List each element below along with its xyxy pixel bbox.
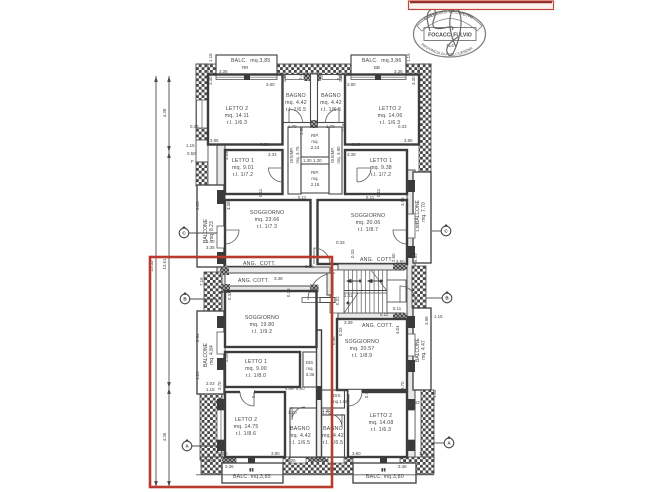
- svg-text:3.33: 3.33: [268, 152, 277, 157]
- svg-text:3.85: 3.85: [404, 138, 413, 143]
- svg-text:FOCACCI FULVIO: FOCACCI FULVIO: [428, 33, 472, 39]
- svg-text:1.30: 1.30: [303, 158, 312, 163]
- svg-text:4.36: 4.36: [162, 432, 167, 441]
- svg-text:0.22: 0.22: [335, 296, 340, 305]
- svg-text:mq. 4.42: mq. 4.42: [320, 100, 342, 106]
- svg-text:2.60: 2.60: [282, 73, 287, 82]
- svg-text:1.68: 1.68: [341, 123, 346, 132]
- svg-text:RR: RR: [242, 65, 248, 70]
- svg-text:3.80: 3.80: [266, 82, 275, 87]
- svg-text:3.50: 3.50: [305, 264, 314, 269]
- svg-text:2.05: 2.05: [195, 201, 200, 210]
- svg-text:0.33: 0.33: [214, 400, 223, 405]
- svg-text:4.06: 4.06: [285, 386, 294, 391]
- svg-text:BAGNO: BAGNO: [321, 93, 341, 99]
- svg-text:mq. 4.42: mq. 4.42: [285, 100, 307, 106]
- svg-text:r.l. 1/7.2: r.l. 1/7.2: [371, 172, 391, 178]
- svg-text:SOGGIORNO: SOGGIORNO: [345, 339, 379, 345]
- svg-text:2.28: 2.28: [224, 353, 229, 362]
- svg-text:LETTO 2: LETTO 2: [226, 106, 248, 112]
- svg-text:DIS.: DIS.: [333, 393, 342, 398]
- svg-text:1.15: 1.15: [186, 143, 195, 148]
- svg-text:3.80: 3.80: [347, 82, 356, 87]
- svg-text:2.05: 2.05: [345, 458, 354, 463]
- svg-text:r.l. 1/8.6: r.l. 1/8.6: [236, 431, 256, 437]
- svg-text:SOGGIORNO: SOGGIORNO: [245, 315, 279, 321]
- svg-text:0.11: 0.11: [376, 188, 381, 197]
- svg-text:3.38: 3.38: [274, 276, 283, 281]
- svg-text:ANG. COTT.: ANG. COTT.: [360, 257, 393, 263]
- svg-text:LETTO 2: LETTO 2: [370, 413, 392, 419]
- svg-text:BB: BB: [374, 65, 380, 70]
- svg-text:2.40: 2.40: [298, 71, 303, 80]
- svg-text:0.11: 0.11: [364, 389, 369, 398]
- svg-text:LETTO 1: LETTO 1: [232, 158, 254, 164]
- svg-text:3.85: 3.85: [210, 138, 219, 143]
- svg-text:0.33: 0.33: [338, 327, 343, 336]
- svg-text:SOGGIORNO: SOGGIORNO: [250, 210, 284, 216]
- svg-text:3.26: 3.26: [205, 458, 214, 463]
- svg-text:3.70: 3.70: [217, 381, 222, 390]
- svg-text:mq. 20.06: mq. 20.06: [356, 220, 381, 226]
- svg-text:r.l. 1/8.9: r.l. 1/8.9: [352, 353, 372, 359]
- svg-text:3.70: 3.70: [400, 381, 405, 390]
- svg-text:mq. 3.76: mq. 3.76: [295, 146, 300, 164]
- svg-text:3.55: 3.55: [400, 197, 405, 206]
- svg-text:0.11: 0.11: [258, 188, 263, 197]
- svg-text:mq. 23.66: mq. 23.66: [255, 217, 280, 223]
- svg-text:2.05: 2.05: [287, 458, 296, 463]
- svg-text:BAGNO: BAGNO: [286, 93, 306, 99]
- svg-text:mq. 9.01: mq. 9.01: [232, 165, 254, 171]
- svg-text:mq. 19.80: mq. 19.80: [250, 322, 275, 328]
- svg-text:ANG. COTT.: ANG. COTT.: [238, 278, 269, 284]
- svg-text:1.68: 1.68: [299, 126, 304, 135]
- svg-text:3.35: 3.35: [206, 245, 215, 250]
- svg-text:4.04: 4.04: [395, 325, 400, 334]
- svg-text:1.15: 1.15: [419, 451, 428, 456]
- svg-text:SOGGIORNO: SOGGIORNO: [351, 213, 385, 219]
- svg-text:BALC. mq.3,86: BALC. mq.3,86: [362, 58, 401, 64]
- svg-text:4.38: 4.38: [162, 108, 167, 117]
- svg-text:mq. 8.23: mq. 8.23: [209, 221, 215, 241]
- svg-text:mq. 4.84: mq. 4.84: [209, 345, 215, 365]
- svg-text:3.95: 3.95: [260, 142, 269, 147]
- svg-text:1.41: 1.41: [344, 293, 353, 298]
- svg-text:mq. 7.70: mq. 7.70: [421, 202, 427, 222]
- svg-text:5.11: 5.11: [298, 195, 307, 200]
- svg-text:RIP.: RIP.: [311, 170, 319, 175]
- svg-text:LETTO 1: LETTO 1: [245, 359, 267, 365]
- svg-text:3.38: 3.38: [347, 152, 356, 157]
- svg-text:LETTO 2: LETTO 2: [235, 417, 257, 423]
- svg-text:mq. 9.00: mq. 9.00: [245, 366, 267, 372]
- svg-text:2.24: 2.24: [311, 145, 320, 150]
- svg-text:5.11: 5.11: [380, 312, 389, 317]
- svg-text:13.61: 13.61: [162, 258, 167, 270]
- svg-text:1.11: 1.11: [432, 389, 437, 398]
- svg-text:3.30: 3.30: [208, 76, 213, 85]
- svg-text:3.36: 3.36: [398, 464, 407, 469]
- svg-text:r.l. 1/8.0: r.l. 1/8.0: [246, 373, 266, 379]
- svg-text:0.50: 0.50: [187, 151, 196, 156]
- svg-text:DISIMP.: DISIMP.: [289, 147, 294, 163]
- svg-text:1.23: 1.23: [195, 371, 200, 380]
- svg-text:5.11: 5.11: [393, 306, 402, 311]
- svg-text:0.33: 0.33: [350, 249, 355, 258]
- svg-text:1.30: 1.30: [322, 408, 331, 413]
- svg-text:3.36: 3.36: [225, 464, 234, 469]
- svg-text:mq.: mq.: [311, 176, 318, 181]
- svg-text:mq. 4.42: mq. 4.42: [289, 433, 311, 439]
- svg-text:mq.: mq.: [306, 366, 313, 371]
- svg-text:2.03: 2.03: [206, 381, 215, 386]
- svg-text:3.36: 3.36: [394, 69, 403, 74]
- svg-text:r.l. 1/8.7: r.l. 1/8.7: [358, 227, 378, 233]
- svg-text:0.33: 0.33: [286, 288, 291, 297]
- svg-text:mq. 20.57: mq. 20.57: [350, 346, 375, 352]
- svg-text:r.l. 1/6.3: r.l. 1/6.3: [371, 427, 391, 433]
- svg-text:0.94: 0.94: [195, 333, 200, 342]
- svg-text:▮▮: ▮▮: [381, 467, 386, 472]
- svg-text:3.36: 3.36: [306, 372, 315, 377]
- svg-text:mq. 14.06: mq. 14.06: [378, 113, 403, 119]
- svg-text:▮▮: ▮▮: [249, 467, 254, 472]
- svg-text:3.95: 3.95: [352, 142, 361, 147]
- svg-text:0.33: 0.33: [336, 240, 345, 245]
- svg-text:7.18: 7.18: [199, 277, 204, 286]
- svg-text:1.15: 1.15: [219, 451, 228, 456]
- svg-text:mq.1.68: mq.1.68: [332, 399, 348, 404]
- svg-text:mq. 9.38: mq. 9.38: [370, 165, 392, 171]
- svg-text:mq. 14.75: mq. 14.75: [234, 424, 259, 430]
- svg-text:LETTO 1: LETTO 1: [370, 158, 392, 164]
- svg-text:mq. 14.08: mq. 14.08: [369, 420, 394, 426]
- svg-text:RIP.: RIP.: [311, 133, 319, 138]
- svg-text:r.l. 1/7.3: r.l. 1/7.3: [257, 224, 277, 230]
- svg-text:3.80: 3.80: [352, 451, 361, 456]
- svg-text:1.50: 1.50: [415, 223, 420, 232]
- svg-text:r.l. 1/9.2: r.l. 1/9.2: [252, 329, 272, 335]
- svg-text:mq. 14.11: mq. 14.11: [225, 113, 249, 119]
- svg-text:mq.: mq.: [311, 139, 318, 144]
- svg-text:3.98: 3.98: [424, 316, 429, 325]
- svg-text:6.99: 6.99: [413, 253, 418, 262]
- svg-text:3.36: 3.36: [219, 69, 228, 74]
- svg-text:3.30: 3.30: [411, 76, 416, 85]
- svg-text:r.l. 1/6.5: r.l. 1/6.5: [290, 440, 310, 446]
- svg-text:r.l. 1/6.3: r.l. 1/6.3: [227, 120, 247, 126]
- svg-text:3.50: 3.50: [396, 259, 405, 264]
- svg-text:ANG. COTT.: ANG. COTT.: [243, 261, 276, 267]
- svg-text:F: F: [191, 159, 194, 164]
- svg-text:3.80: 3.80: [271, 451, 280, 456]
- svg-text:3.49: 3.49: [224, 151, 229, 160]
- svg-text:mq. 4.47: mq. 4.47: [421, 340, 427, 360]
- svg-text:r.l. 1/7.2: r.l. 1/7.2: [233, 172, 253, 178]
- svg-text:0.33: 0.33: [227, 291, 232, 300]
- svg-text:1.15: 1.15: [434, 314, 443, 319]
- svg-text:ANG. COTT.: ANG. COTT.: [362, 323, 393, 329]
- svg-text:2.18: 2.18: [311, 182, 320, 187]
- svg-text:4.00: 4.00: [296, 386, 305, 391]
- svg-text:DIS.: DIS.: [306, 360, 315, 365]
- svg-text:LETTO 2: LETTO 2: [379, 106, 401, 112]
- svg-text:DISIMP.: DISIMP.: [330, 147, 335, 163]
- svg-text:0.33: 0.33: [411, 400, 420, 405]
- svg-text:5.11: 5.11: [366, 195, 375, 200]
- svg-text:BALC. mq.3,85: BALC. mq.3,85: [231, 58, 270, 64]
- svg-text:2.50: 2.50: [391, 253, 396, 262]
- svg-text:0.33: 0.33: [190, 124, 199, 129]
- svg-text:1.40: 1.40: [206, 239, 215, 244]
- svg-text:1.15: 1.15: [208, 53, 213, 62]
- svg-text:1.15: 1.15: [406, 53, 411, 62]
- svg-text:1.15: 1.15: [206, 387, 215, 392]
- svg-text:BAGNO: BAGNO: [290, 426, 310, 432]
- svg-text:4.38: 4.38: [226, 201, 231, 210]
- svg-text:1.30: 1.30: [313, 158, 322, 163]
- svg-text:2.40: 2.40: [336, 71, 341, 80]
- svg-text:0.33: 0.33: [398, 124, 407, 129]
- svg-text:3.39: 3.39: [344, 320, 353, 325]
- svg-text:mq. 3.90: mq. 3.90: [336, 146, 341, 164]
